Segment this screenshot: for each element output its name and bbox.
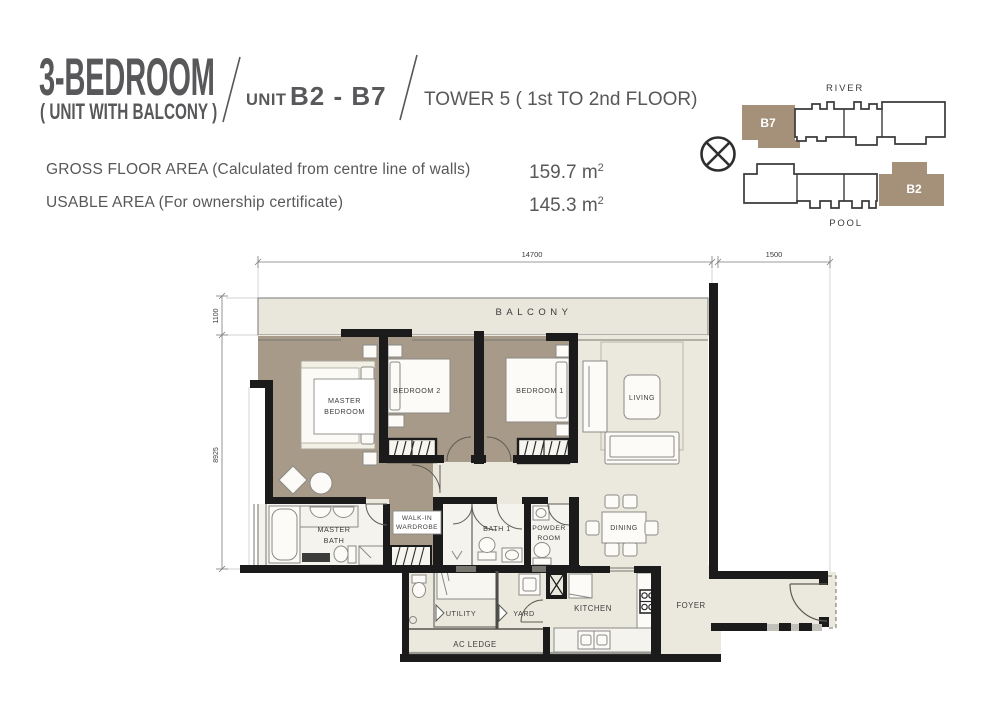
svg-text:WARDROBE: WARDROBE [396,524,438,531]
svg-text:MASTER: MASTER [328,396,361,405]
svg-text:POWDER: POWDER [532,525,566,532]
svg-text:BALCONY: BALCONY [496,307,573,318]
svg-text:ROOM: ROOM [537,535,560,542]
svg-text:B7: B7 [760,116,776,130]
svg-text:1500: 1500 [766,250,783,259]
svg-text:145.3 m2: 145.3 m2 [529,195,604,216]
svg-text:BATH: BATH [324,536,345,545]
svg-text:LIVING: LIVING [629,395,655,402]
svg-text:1100: 1100 [213,308,220,323]
svg-text:MASTER: MASTER [318,525,351,534]
svg-text:159.7 m2: 159.7 m2 [529,162,604,183]
svg-text:POOL: POOL [829,218,863,229]
svg-text:B2: B2 [906,182,922,196]
svg-text:UTILITY: UTILITY [446,609,476,618]
svg-text:TOWER 5 ( 1st TO 2nd FLOOR): TOWER 5 ( 1st TO 2nd FLOOR) [424,89,697,110]
svg-text:BEDROOM: BEDROOM [324,407,365,416]
svg-text:KITCHEN: KITCHEN [574,604,612,613]
svg-text:3-BEDROOM: 3-BEDROOM [39,48,215,107]
svg-text:14700: 14700 [522,250,543,259]
svg-text:YARD: YARD [513,609,534,618]
svg-text:DINING: DINING [610,525,638,532]
svg-text:GROSS FLOOR AREA (Calculated: GROSS FLOOR AREA (Calculated from centre… [46,161,470,178]
svg-text:( UNIT WITH BALCONY ): ( UNIT WITH BALCONY ) [40,100,217,125]
svg-text:WALK-IN: WALK-IN [402,515,432,522]
svg-text:USABLE AREA (For ownership ce: USABLE AREA (For ownership certificate) [46,194,343,211]
svg-text:FOYER: FOYER [676,601,705,610]
svg-text:BEDROOM 2: BEDROOM 2 [393,386,441,395]
svg-text:RIVER: RIVER [826,83,864,94]
svg-text:UNIT: UNIT [246,91,287,109]
svg-text:AC LEDGE: AC LEDGE [453,640,496,649]
svg-text:BEDROOM 1: BEDROOM 1 [516,386,564,395]
svg-text:BATH 1: BATH 1 [483,524,511,533]
svg-text:8925: 8925 [213,447,220,463]
svg-text:B2 - B7: B2 - B7 [290,81,387,111]
